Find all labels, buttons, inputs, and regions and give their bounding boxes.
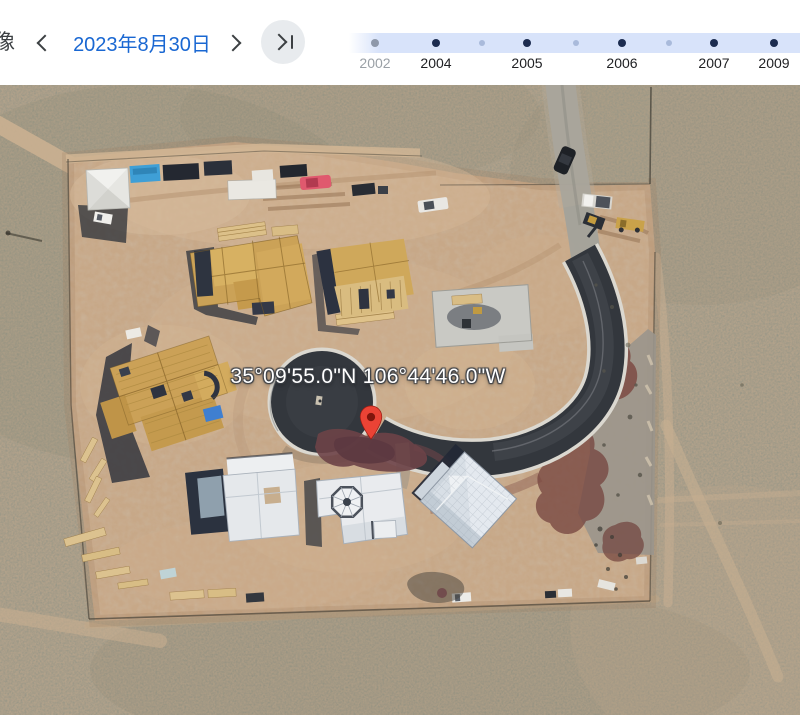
timeline-year-label-2002[interactable]: 2002 [359,55,390,71]
timeline-dot-2006[interactable] [618,39,626,47]
timeline-dot-2004[interactable] [432,39,440,47]
timeline-dot-2009[interactable] [770,39,778,47]
historical-imagery-app: 像 2023年8月30日 200220042005200620072009 [0,0,800,715]
coordinates-label: 35°09'55.0"N 106°44'46.0"W [230,365,505,389]
timeline-dot-minor[interactable] [666,40,672,46]
timeline-year-label-2005[interactable]: 2005 [511,55,542,71]
map-pin[interactable] [358,405,384,441]
timeline-year-label-2007[interactable]: 2007 [698,55,729,71]
timeline-dot-2005[interactable] [523,39,531,47]
timeline-dot-minor[interactable] [573,40,579,46]
timeline-year-label-2009[interactable]: 2009 [758,55,789,71]
timeline-year-label-2006[interactable]: 2006 [606,55,637,71]
timeline-dot-2007[interactable] [710,39,718,47]
timeline-dot-2002[interactable] [371,39,379,47]
house-with-octagon [304,472,408,547]
scrub-wedge [586,85,650,182]
timeline-dot-minor[interactable] [479,40,485,46]
toolbar: 像 2023年8月30日 200220042005200620072009 [0,0,800,85]
red-car [300,175,332,191]
timeline[interactable]: 200220042005200620072009 [0,0,800,85]
timeline-year-label-2004[interactable]: 2004 [420,55,451,71]
blue-tarp [129,164,160,183]
satellite-image [0,85,800,715]
canopy-tent [86,168,130,210]
satellite-map[interactable]: 35°09'55.0"N 106°44'46.0"W [0,85,800,715]
